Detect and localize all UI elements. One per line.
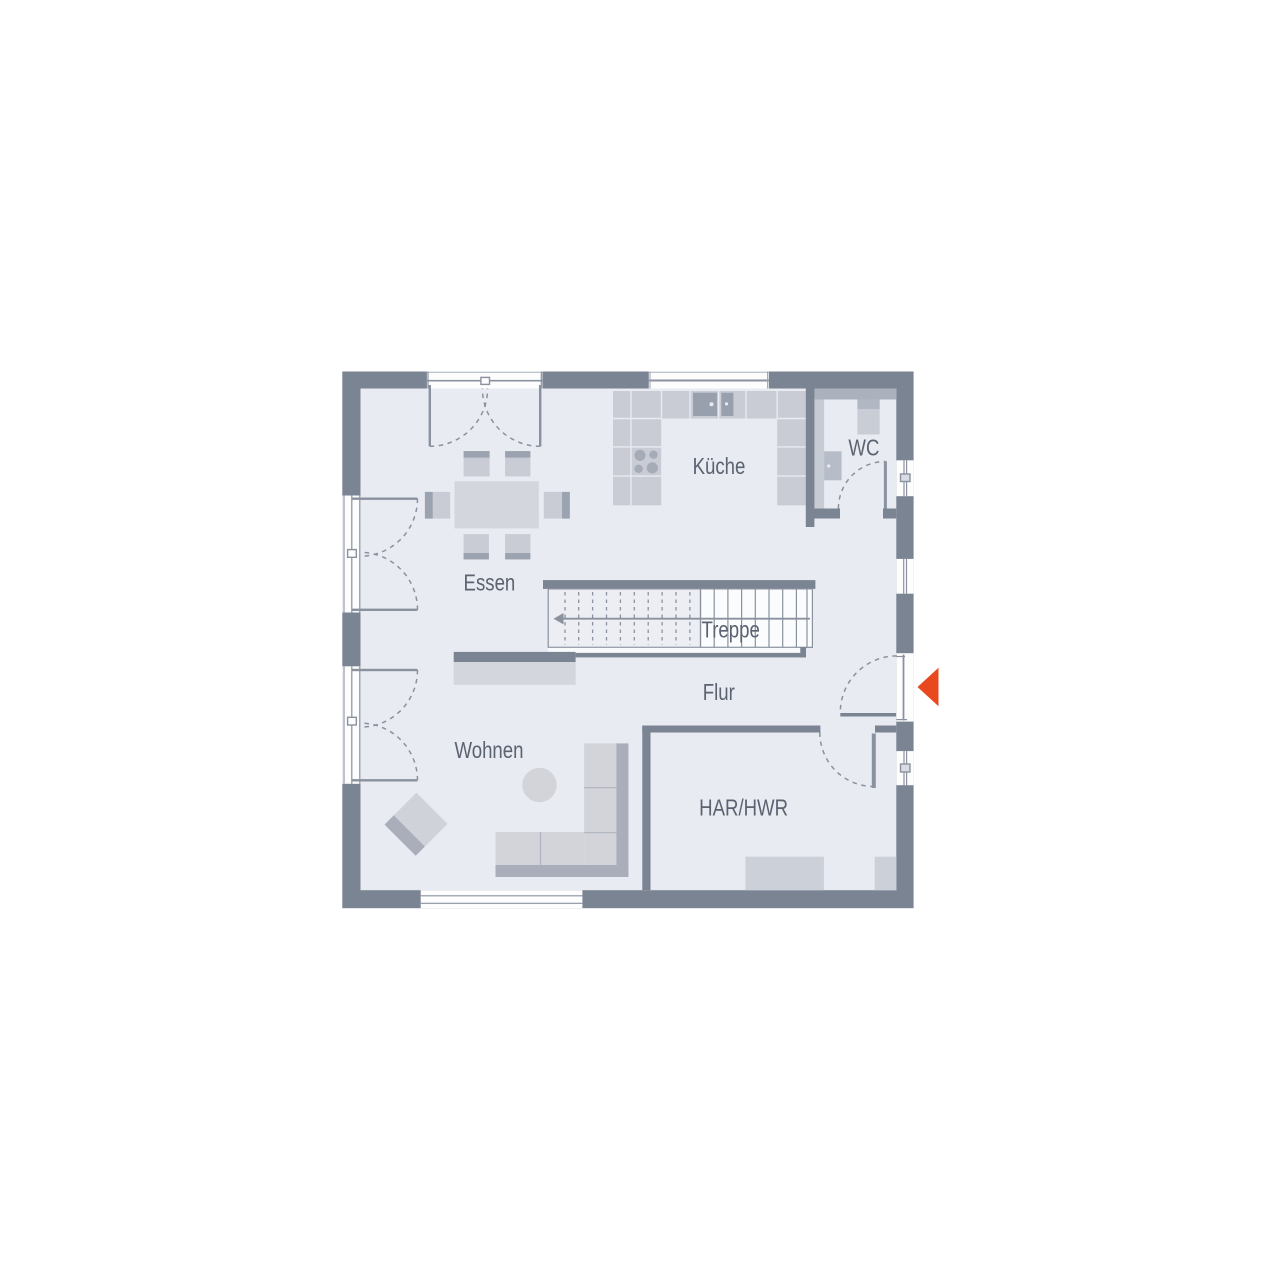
svg-text:Wohnen: Wohnen bbox=[455, 738, 524, 763]
svg-text:WC: WC bbox=[848, 436, 879, 461]
svg-text:Flur: Flur bbox=[703, 680, 735, 705]
svg-text:HAR/HWR: HAR/HWR bbox=[699, 796, 788, 821]
svg-text:Treppe: Treppe bbox=[702, 618, 760, 643]
svg-text:Küche: Küche bbox=[693, 454, 746, 479]
svg-text:Essen: Essen bbox=[464, 571, 516, 596]
